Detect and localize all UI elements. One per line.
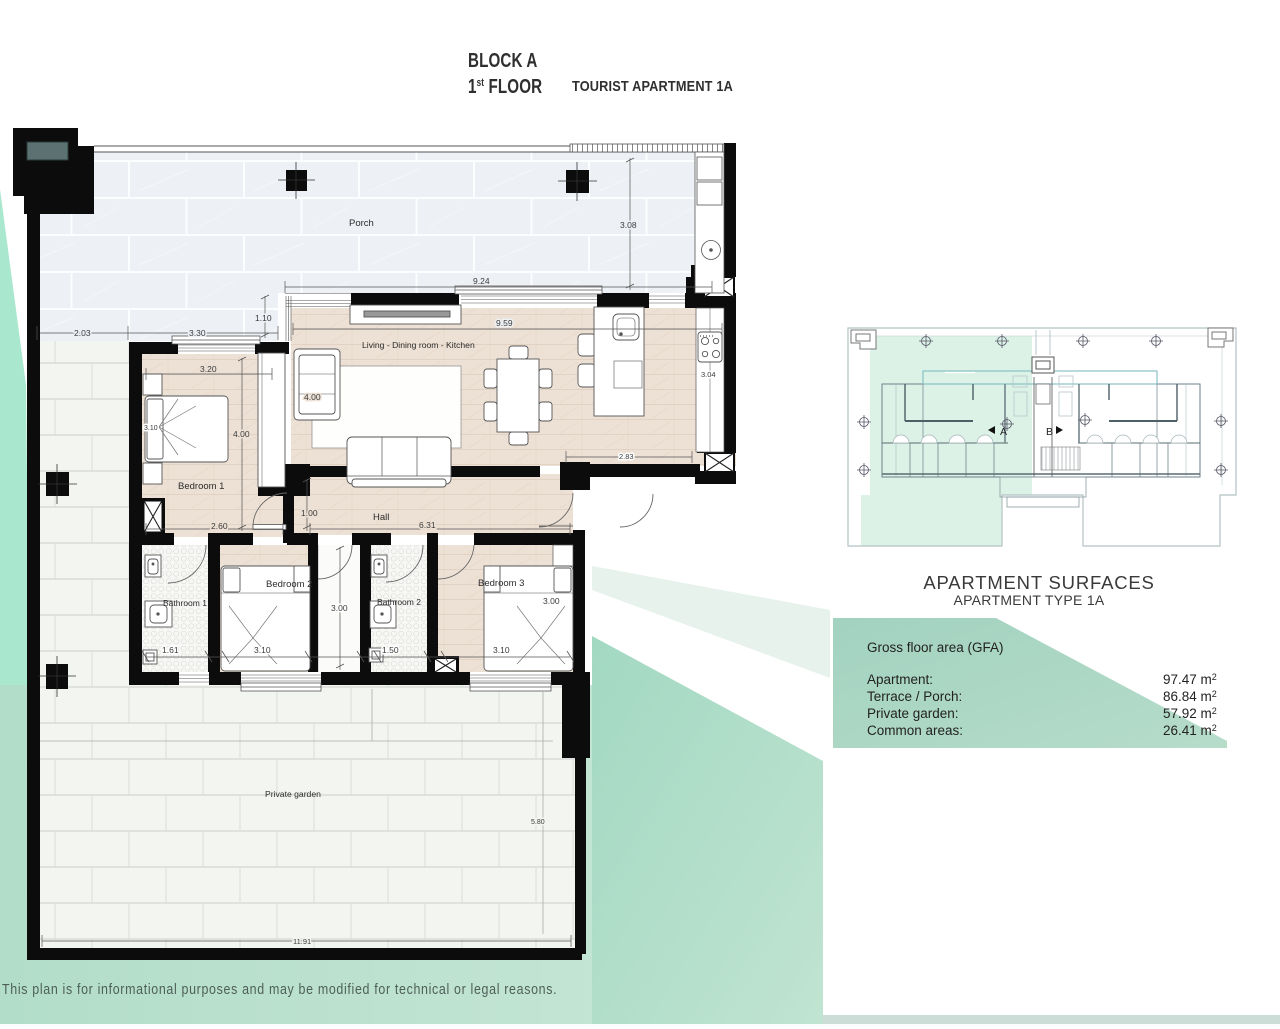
svg-text:Bathroom 1: Bathroom 1	[163, 598, 207, 608]
svg-text:Porch: Porch	[349, 218, 374, 229]
svg-text:3.30: 3.30	[189, 328, 206, 338]
svg-text:3.10: 3.10	[144, 425, 158, 432]
svg-text:9.24: 9.24	[473, 276, 490, 286]
svg-text:9.59: 9.59	[496, 318, 513, 328]
svg-text:6.31: 6.31	[419, 520, 436, 530]
svg-text:BLOCK A: BLOCK A	[468, 49, 538, 72]
svg-text:3.00: 3.00	[543, 596, 560, 606]
svg-text:Bedroom 2: Bedroom 2	[266, 579, 312, 590]
svg-text:2.03: 2.03	[74, 328, 91, 338]
svg-text:Apartment:: Apartment:	[867, 672, 933, 687]
svg-text:86.84 m2: 86.84 m2	[1163, 689, 1217, 704]
svg-text:3.10: 3.10	[254, 645, 271, 655]
svg-text:Bathroom 2: Bathroom 2	[377, 597, 421, 607]
svg-text:1.00: 1.00	[301, 508, 318, 518]
svg-text:2.83: 2.83	[619, 452, 634, 461]
svg-text:TOURIST APARTMENT 1A: TOURIST APARTMENT 1A	[572, 77, 733, 94]
svg-text:3.08: 3.08	[620, 220, 637, 230]
svg-text:Hall: Hall	[373, 512, 389, 523]
svg-text:APARTMENT SURFACES: APARTMENT SURFACES	[923, 572, 1154, 593]
svg-text:Common areas:: Common areas:	[867, 723, 963, 738]
svg-text:Private garden:: Private garden:	[867, 706, 959, 721]
svg-text:Bedroom 1: Bedroom 1	[178, 481, 224, 492]
svg-text:Terrace / Porch:: Terrace / Porch:	[867, 689, 962, 704]
svg-text:97.47 m2: 97.47 m2	[1163, 672, 1217, 687]
svg-text:Living - Dining room - Kitchen: Living - Dining room - Kitchen	[362, 340, 475, 350]
svg-text:1.10: 1.10	[255, 313, 272, 323]
svg-text:57.92 m2: 57.92 m2	[1163, 706, 1217, 721]
svg-text:APARTMENT TYPE 1A: APARTMENT TYPE 1A	[953, 592, 1104, 608]
svg-text:2.60: 2.60	[211, 521, 228, 531]
svg-text:This plan is for informational: This plan is for informational purposes …	[2, 981, 557, 997]
svg-text:1.50: 1.50	[382, 645, 399, 655]
svg-text:B: B	[1046, 426, 1053, 438]
svg-text:3.04: 3.04	[701, 370, 716, 379]
svg-text:Private garden: Private garden	[265, 789, 321, 799]
svg-text:Gross floor area (GFA): Gross floor area (GFA)	[867, 640, 1004, 655]
svg-text:3.10: 3.10	[493, 645, 510, 655]
svg-text:4.00: 4.00	[233, 429, 250, 439]
svg-text:1.61: 1.61	[162, 645, 179, 655]
svg-text:26.41 m2: 26.41 m2	[1163, 723, 1217, 738]
svg-text:4.00: 4.00	[304, 392, 321, 402]
svg-text:3.20: 3.20	[200, 364, 217, 374]
svg-text:3.00: 3.00	[331, 603, 348, 613]
svg-text:A: A	[1000, 426, 1007, 438]
svg-text:5.80: 5.80	[531, 819, 545, 826]
svg-text:Bedroom 3: Bedroom 3	[478, 578, 524, 589]
svg-text:11.91: 11.91	[293, 937, 311, 946]
